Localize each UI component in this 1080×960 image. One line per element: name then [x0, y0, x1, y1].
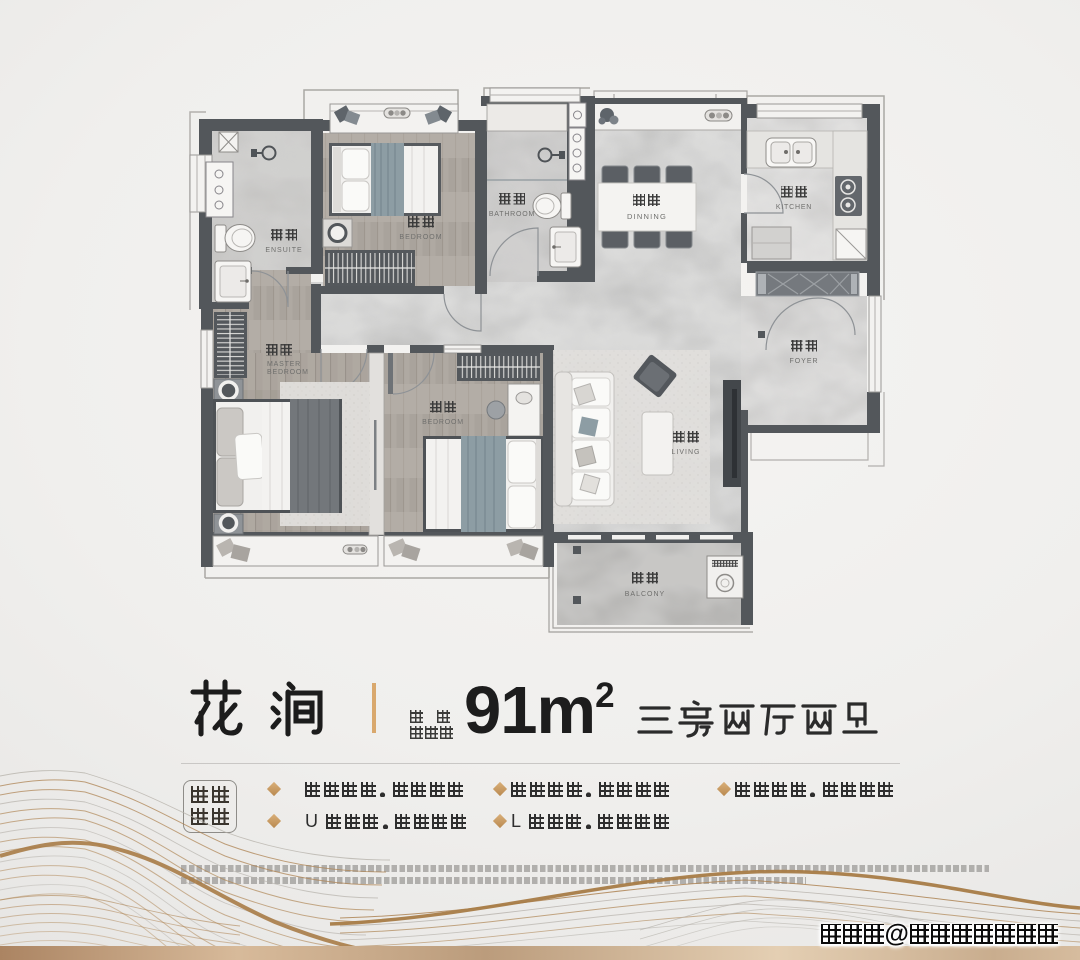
svg-text:BATHROOM: BATHROOM — [489, 211, 535, 218]
svg-text:BEDROOM: BEDROOM — [422, 419, 464, 426]
svg-text:BEDROOM: BEDROOM — [267, 369, 309, 376]
svg-text:ENSUITE: ENSUITE — [265, 247, 302, 254]
svg-text:KITCHEN: KITCHEN — [776, 204, 812, 211]
svg-text:FOYER: FOYER — [789, 358, 818, 365]
svg-text:LIVING: LIVING — [672, 449, 701, 456]
svg-text:BALCONY: BALCONY — [625, 591, 665, 598]
svg-text:DINNING: DINNING — [627, 212, 667, 221]
svg-text:MASTER: MASTER — [267, 361, 301, 368]
svg-text:BEDROOM: BEDROOM — [399, 234, 442, 241]
